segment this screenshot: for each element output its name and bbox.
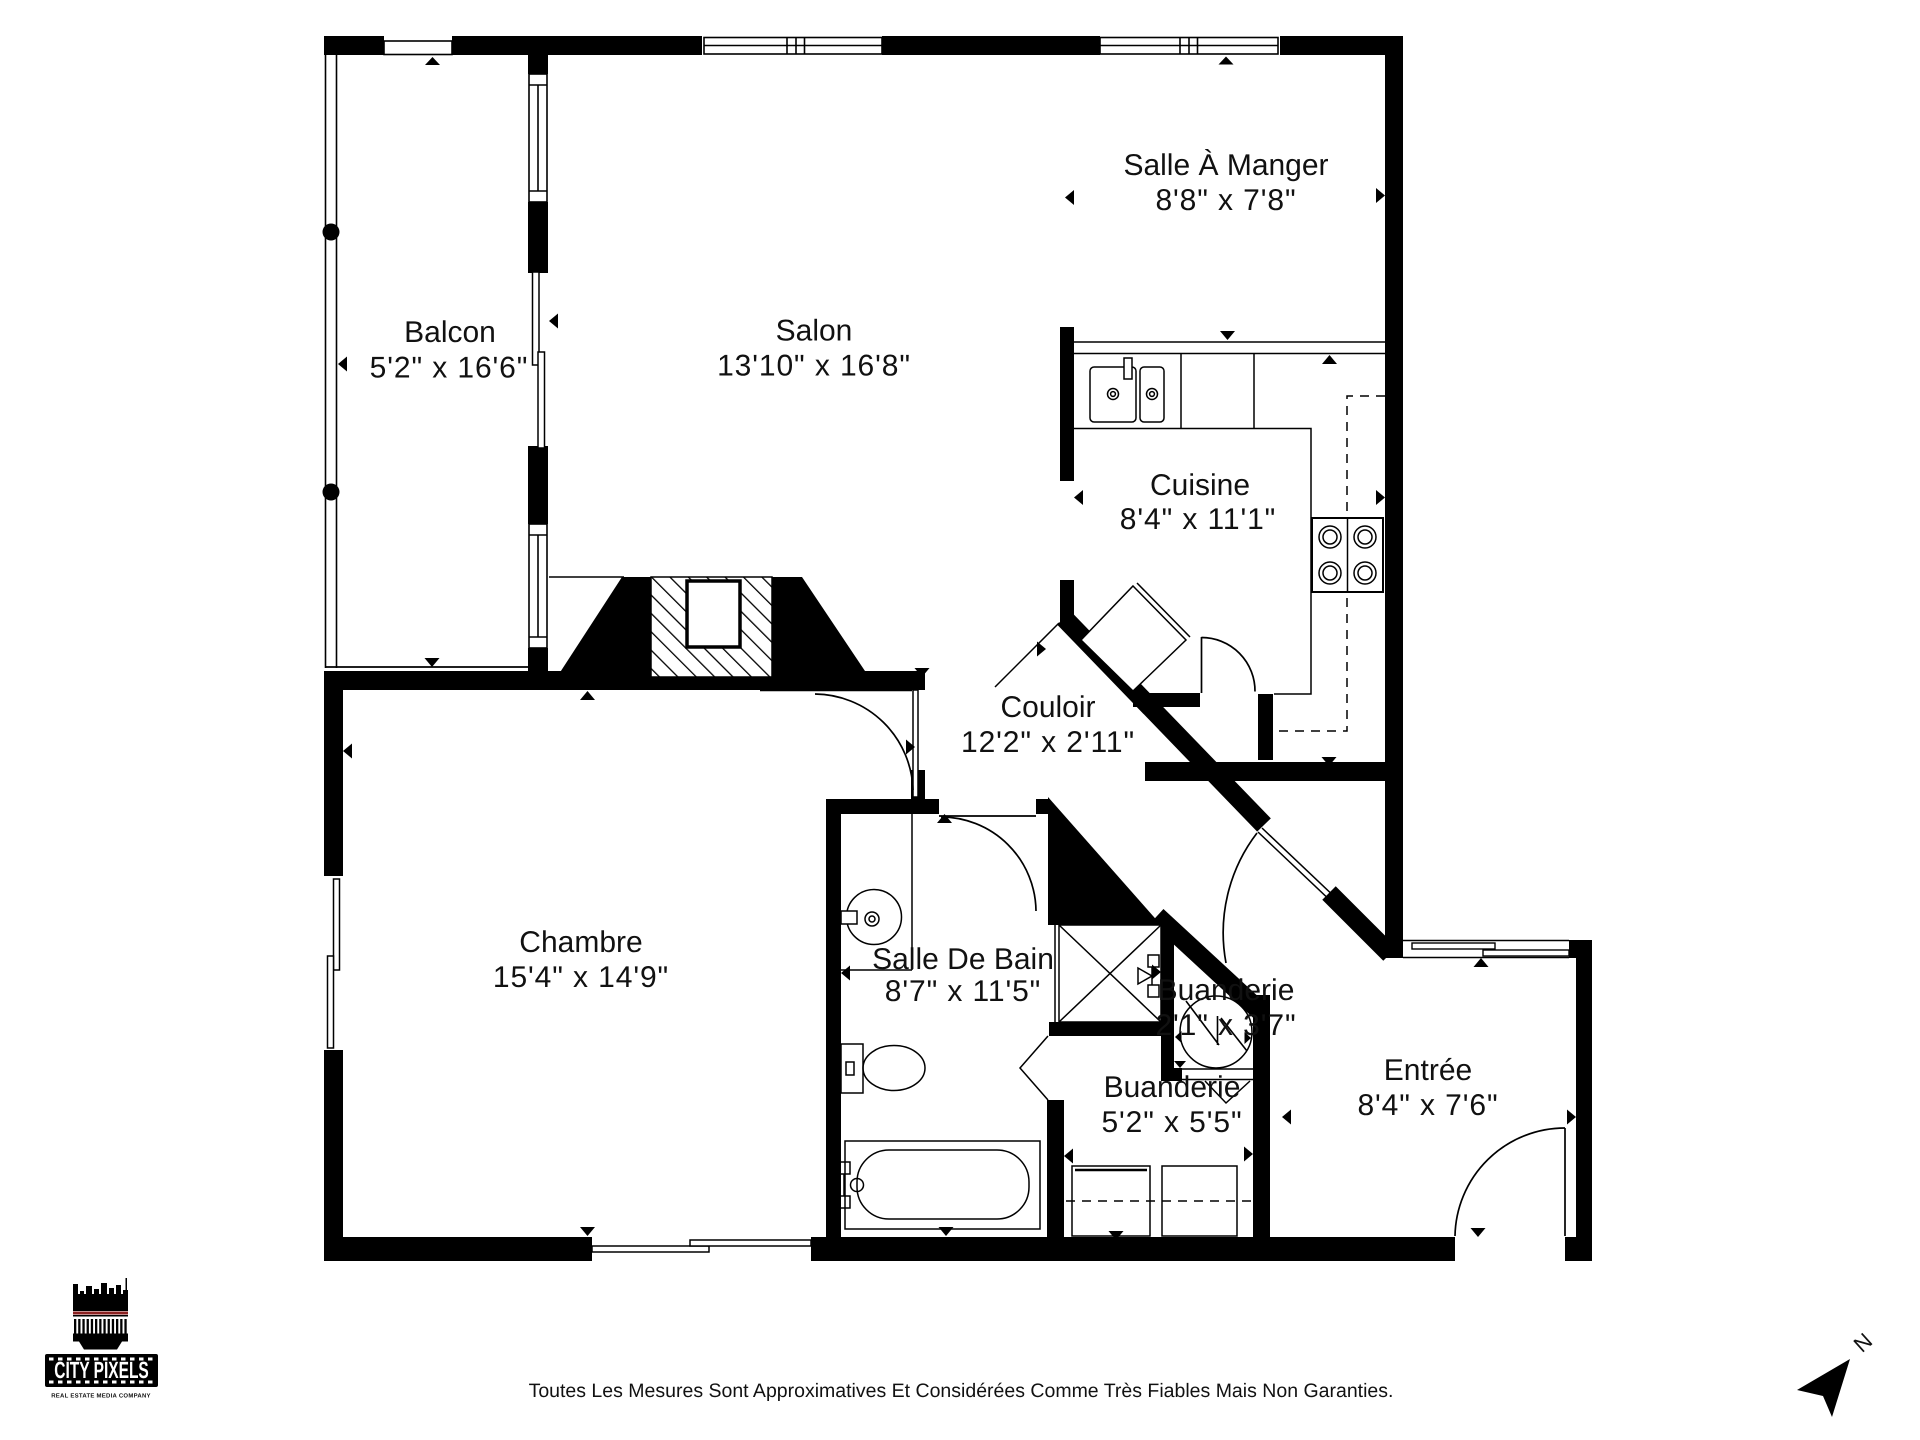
svg-text:Cuisine: Cuisine xyxy=(1150,469,1250,502)
svg-text:Salle À Manger: Salle À Manger xyxy=(1123,148,1328,182)
svg-text:Chambre: Chambre xyxy=(519,926,642,959)
svg-text:5'2" x 16'6": 5'2" x 16'6" xyxy=(370,352,529,385)
svg-text:Salle De Bain: Salle De Bain xyxy=(872,943,1054,976)
svg-text:Entrée: Entrée xyxy=(1384,1054,1472,1087)
svg-text:8'7" x 11'5": 8'7" x 11'5" xyxy=(885,975,1041,1008)
svg-text:12'2" x 2'11": 12'2" x 2'11" xyxy=(961,726,1135,759)
svg-text:CITY PIXELS: CITY PIXELS xyxy=(54,1357,149,1383)
svg-text:8'4" x 11'1": 8'4" x 11'1" xyxy=(1120,503,1276,536)
svg-text:Balcon: Balcon xyxy=(404,316,496,349)
svg-text:5'2" x 5'5": 5'2" x 5'5" xyxy=(1101,1106,1242,1139)
svg-text:8'4" x 7'6": 8'4" x 7'6" xyxy=(1357,1089,1498,1122)
svg-text:Buanderie: Buanderie xyxy=(1104,1071,1241,1104)
svg-text:Salon: Salon xyxy=(776,315,853,348)
svg-text:13'10" x 16'8": 13'10" x 16'8" xyxy=(717,350,911,383)
svg-text:8'8" x 7'8": 8'8" x 7'8" xyxy=(1155,184,1296,217)
svg-text:15'4" x 14'9": 15'4" x 14'9" xyxy=(493,961,669,994)
svg-text:Couloir: Couloir xyxy=(1000,691,1095,724)
svg-text:Buanderie: Buanderie xyxy=(1158,974,1295,1007)
svg-text:Toutes Les Mesures Sont Approx: Toutes Les Mesures Sont Approximatives E… xyxy=(529,1380,1394,1402)
svg-text:REAL ESTATE MEDIA COMPANY: REAL ESTATE MEDIA COMPANY xyxy=(51,1393,151,1400)
